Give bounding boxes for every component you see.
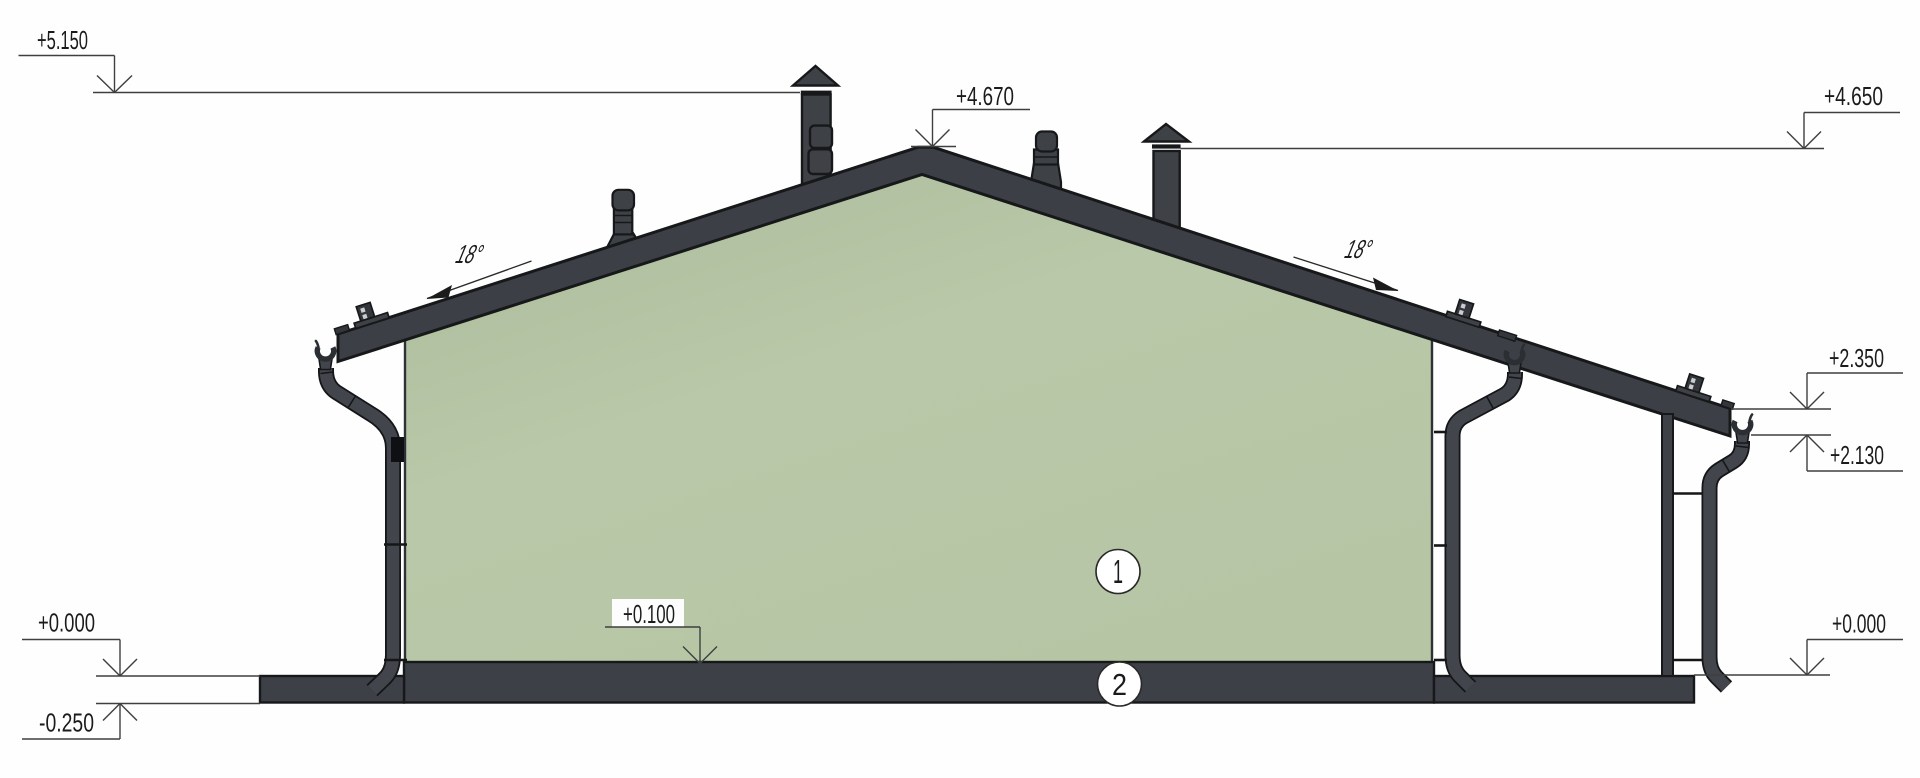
svg-text:+4.670: +4.670 (956, 81, 1014, 111)
svg-text:+0.000: +0.000 (38, 608, 95, 638)
svg-text:-0.250: -0.250 (39, 708, 94, 738)
svg-text:+4.650: +4.650 (1824, 81, 1883, 111)
svg-text:+2.350: +2.350 (1829, 343, 1884, 373)
svg-text:1: 1 (1113, 553, 1123, 590)
svg-text:+2.130: +2.130 (1830, 440, 1884, 470)
svg-text:+0.000: +0.000 (1832, 609, 1886, 639)
svg-text:2: 2 (1112, 667, 1127, 702)
svg-text:+5.150: +5.150 (37, 25, 88, 55)
svg-text:+0.100: +0.100 (623, 599, 675, 629)
